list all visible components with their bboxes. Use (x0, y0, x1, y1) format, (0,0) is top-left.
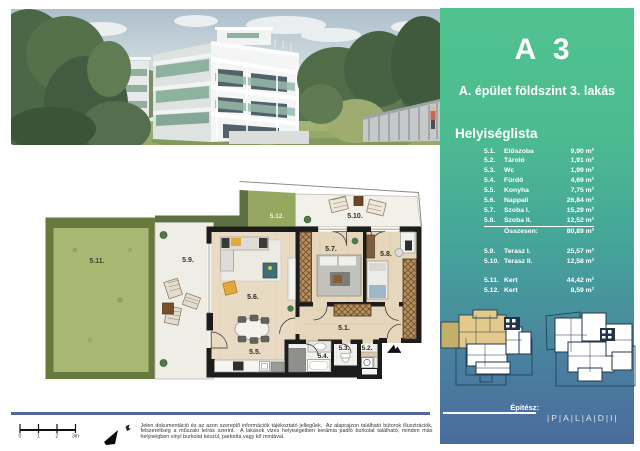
svg-text:5.9.: 5.9. (182, 257, 194, 264)
svg-text:5.10.: 5.10. (347, 213, 363, 220)
svg-text:5.8.: 5.8. (380, 251, 392, 258)
svg-text:0: 0 (19, 434, 22, 440)
svg-text:5.7.: 5.7. (325, 246, 337, 253)
svg-text:5.6.: 5.6. (247, 294, 259, 301)
svg-text:1: 1 (37, 434, 40, 440)
svg-text:5.3.: 5.3. (339, 345, 350, 352)
svg-text:5.11.: 5.11. (89, 258, 104, 265)
svg-text:5.1.: 5.1. (338, 325, 350, 332)
svg-text:2: 2 (56, 434, 59, 440)
svg-text:5.12.: 5.12. (270, 213, 285, 220)
svg-text:5.2.: 5.2. (362, 345, 373, 352)
svg-text:5.4.: 5.4. (318, 353, 329, 360)
svg-text:5.5.: 5.5. (249, 349, 261, 356)
svg-text:3m: 3m (72, 434, 79, 440)
